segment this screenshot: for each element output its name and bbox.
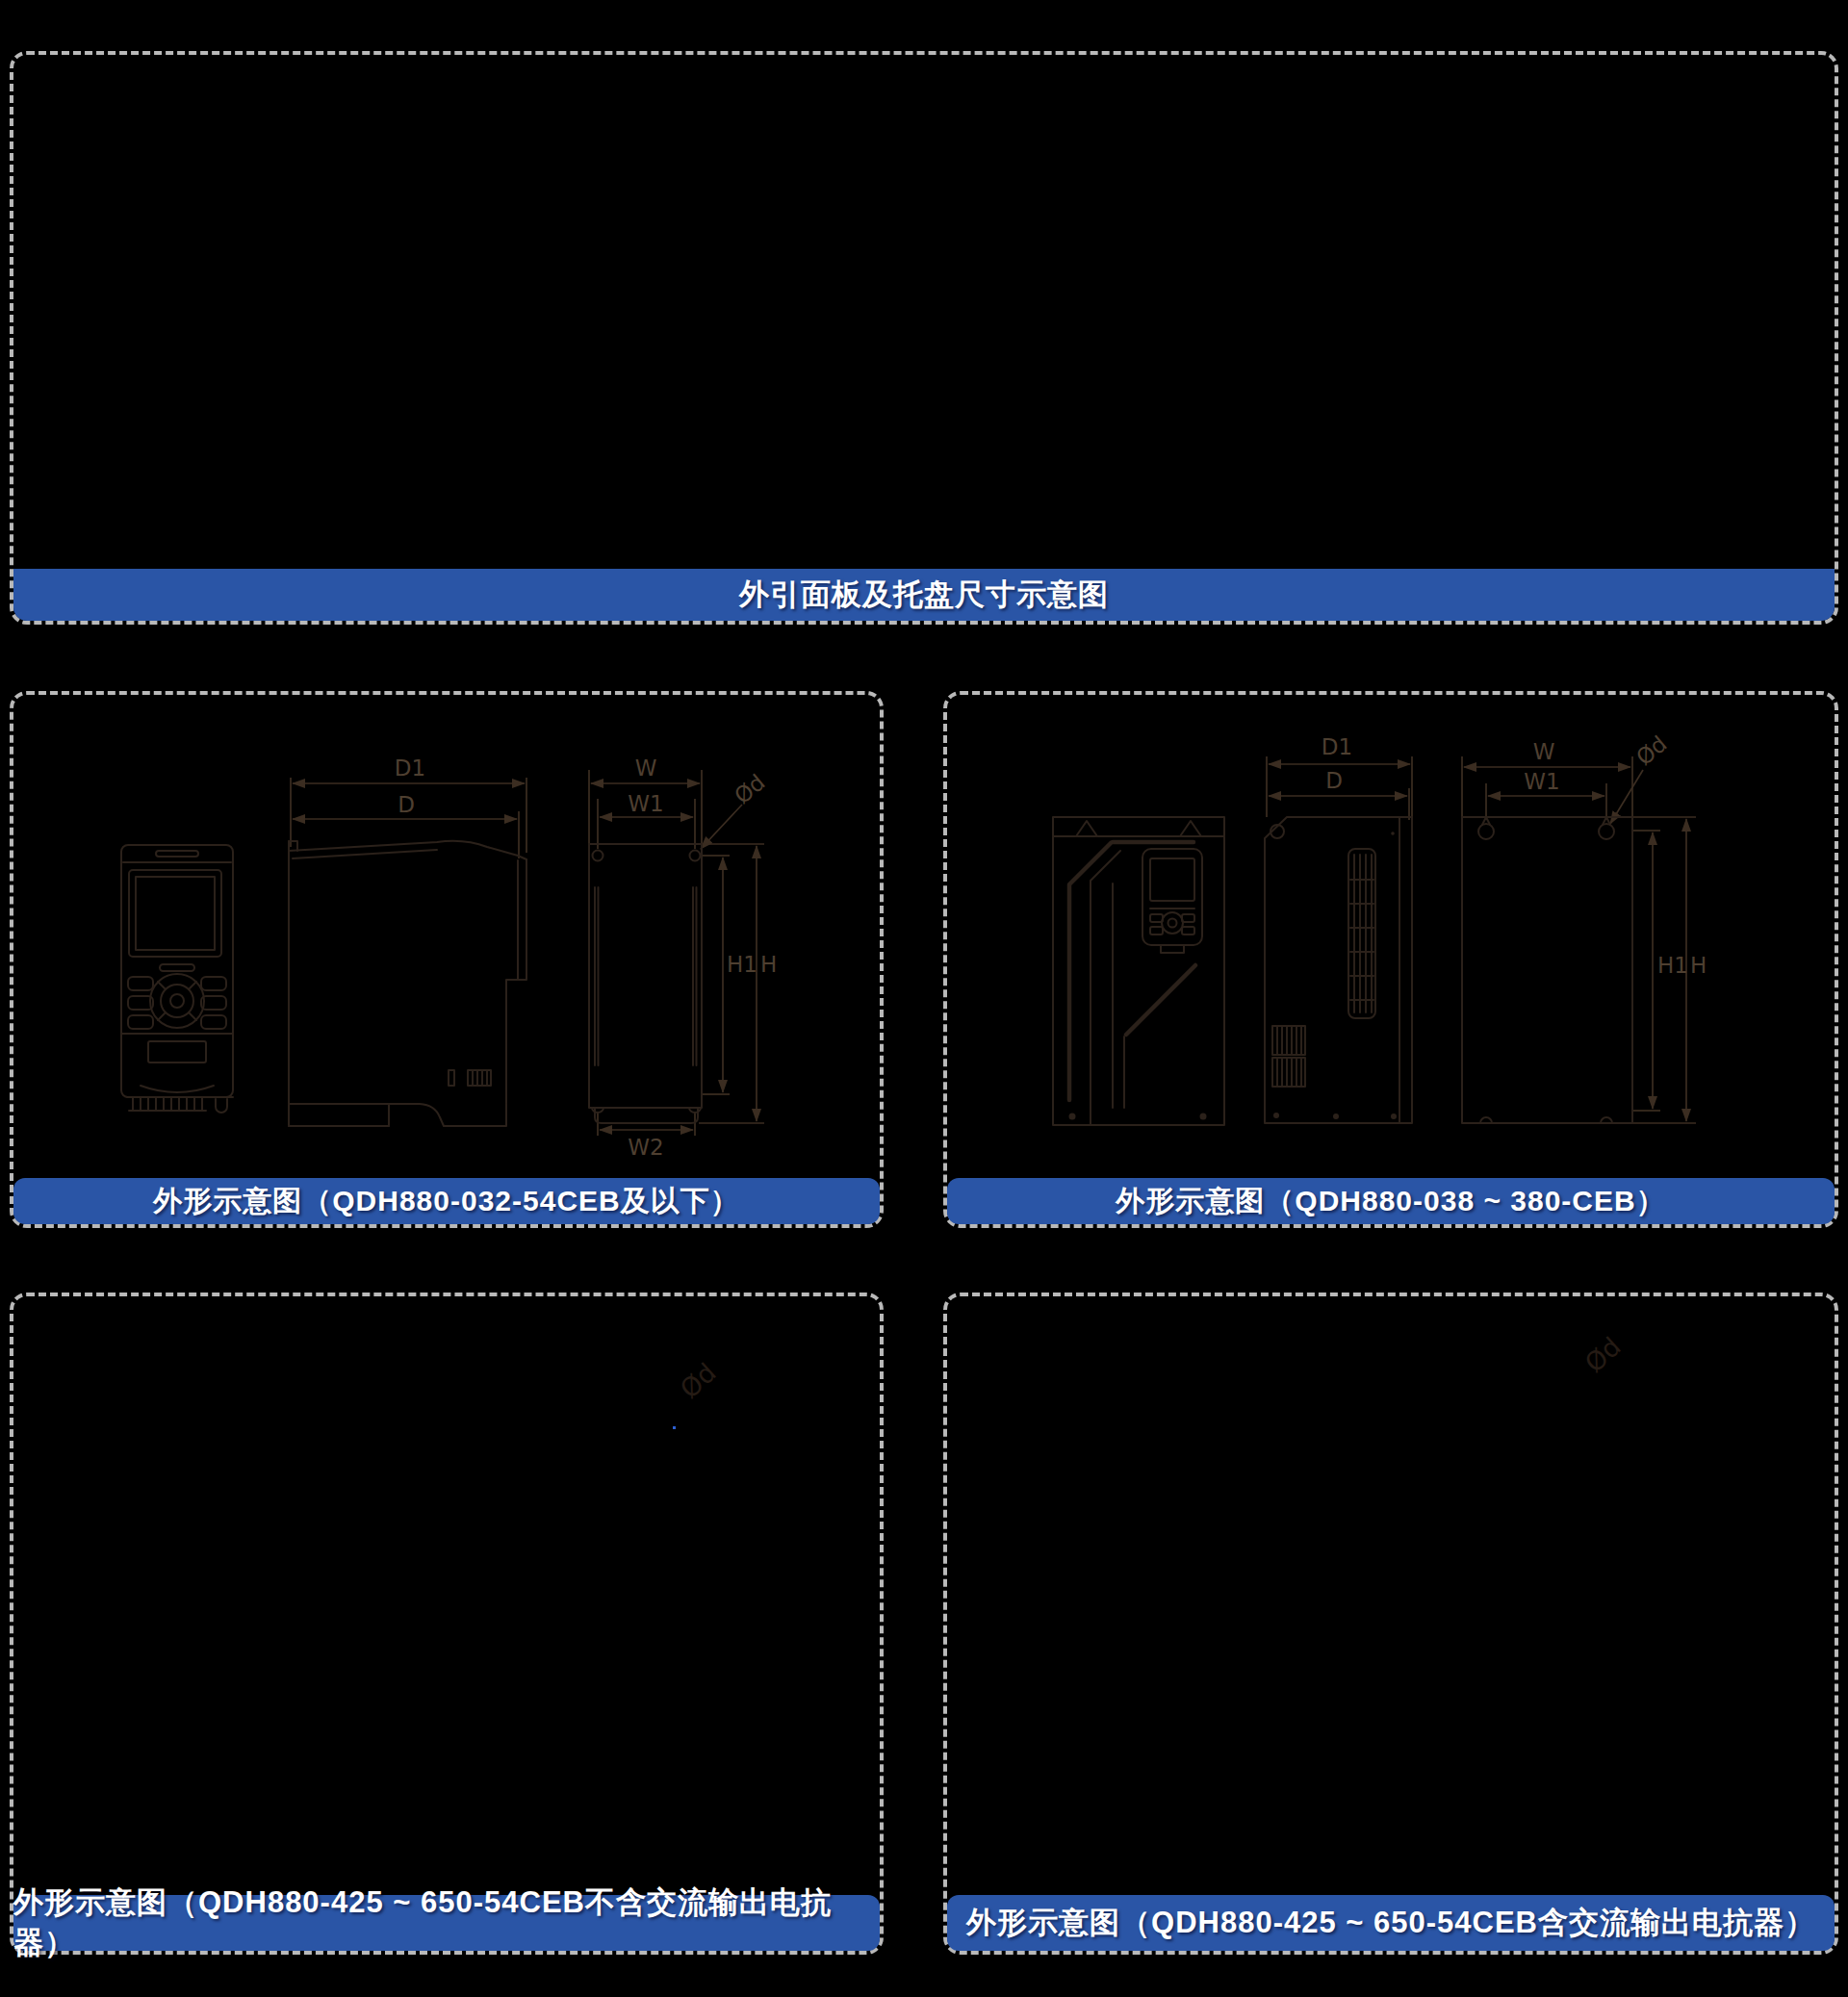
small-drive-caption-text: 外形示意图（QDH880-032-54CEB及以下） — [153, 1182, 739, 1221]
panel-cabinet-with-reactor: Ød 外形示意图（QDH880-425 ~ 650-54CEB含交流输出电抗器） — [943, 1293, 1838, 1955]
mounting-dimension-lines-right — [1462, 756, 1696, 1123]
dim-label-d-right: D — [1325, 768, 1343, 793]
side-body-outline-right — [1265, 817, 1412, 1123]
cabinet-with-reactor-caption-banner: 外形示意图（QDH880-425 ~ 650-54CEB含交流输出电抗器） — [947, 1895, 1835, 1951]
dim-label-d1-right: D1 — [1322, 734, 1352, 759]
dim-label-d: D — [398, 792, 415, 817]
dim-label-h-right: H — [1690, 953, 1707, 978]
large-drive-side-view: D1 D — [1265, 734, 1412, 1123]
large-drive-mounting-view: W W1 Ød H1 H — [1462, 730, 1707, 1123]
panel-cabinet-without-reactor: Ød 外形示意图（QDH880-425 ~ 650-54CEB不含交流输出电抗器… — [10, 1293, 884, 1955]
dim-label-od-faint-right: Ød — [1579, 1331, 1627, 1378]
panel-large-drive: D1 D — [943, 691, 1838, 1228]
small-drive-front-view — [121, 845, 233, 1113]
cabinet-without-reactor-caption-text: 外形示意图（QDH880-425 ~ 650-54CEB不含交流输出电抗器） — [13, 1882, 880, 1963]
mounting-body-outline — [589, 844, 702, 1123]
dim-label-w-right: W — [1533, 739, 1555, 764]
top-caption-banner: 外引面板及托盘尺寸示意图 — [13, 569, 1835, 621]
cabinet-with-reactor-caption-text: 外形示意图（QDH880-425 ~ 650-54CEB含交流输出电抗器） — [966, 1903, 1815, 1943]
depth-dimension-lines — [291, 778, 526, 858]
dim-label-od-faint-left: Ød — [675, 1357, 722, 1404]
dim-label-w1: W1 — [628, 791, 663, 816]
dim-label-w: W — [635, 755, 657, 781]
dim-label-w2: W2 — [628, 1135, 663, 1160]
mounting-body-outline-right — [1462, 817, 1632, 1123]
large-drive-caption-text: 外形示意图（QDH880-038 ~ 380-CEB） — [1116, 1182, 1665, 1221]
dim-label-h: H — [760, 952, 777, 977]
dim-label-w1-right: W1 — [1524, 769, 1559, 794]
large-drive-caption-banner: 外形示意图（QDH880-038 ~ 380-CEB） — [947, 1178, 1835, 1224]
dim-label-od-right: Ød — [1631, 730, 1672, 770]
panel-small-drive: D1 D — [10, 691, 884, 1228]
large-drive-dimension-drawing: D1 D — [947, 695, 1835, 1182]
dim-label-od: Ød — [730, 769, 770, 808]
side-body-outline — [289, 841, 526, 1126]
page: 外引面板及托盘尺寸示意图 — [0, 0, 1848, 1997]
top-figure-box: 外引面板及托盘尺寸示意图 — [10, 51, 1838, 625]
stray-blue-pixel — [673, 1426, 676, 1429]
small-drive-caption-banner: 外形示意图（QDH880-032-54CEB及以下） — [13, 1178, 880, 1224]
dim-label-d1: D1 — [395, 755, 425, 781]
small-drive-side-view: D1 D — [289, 755, 526, 1126]
large-drive-front-view — [1053, 817, 1224, 1125]
dim-label-h1-right: H1 — [1657, 953, 1688, 978]
cabinet-without-reactor-caption-banner: 外形示意图（QDH880-425 ~ 650-54CEB不含交流输出电抗器） — [13, 1895, 880, 1951]
dim-label-h1: H1 — [727, 952, 757, 977]
small-drive-mounting-view: W W1 Ød H1 H W2 — [589, 755, 777, 1160]
small-drive-dimension-drawing: D1 D — [13, 695, 880, 1182]
top-caption-text: 外引面板及托盘尺寸示意图 — [739, 575, 1109, 615]
